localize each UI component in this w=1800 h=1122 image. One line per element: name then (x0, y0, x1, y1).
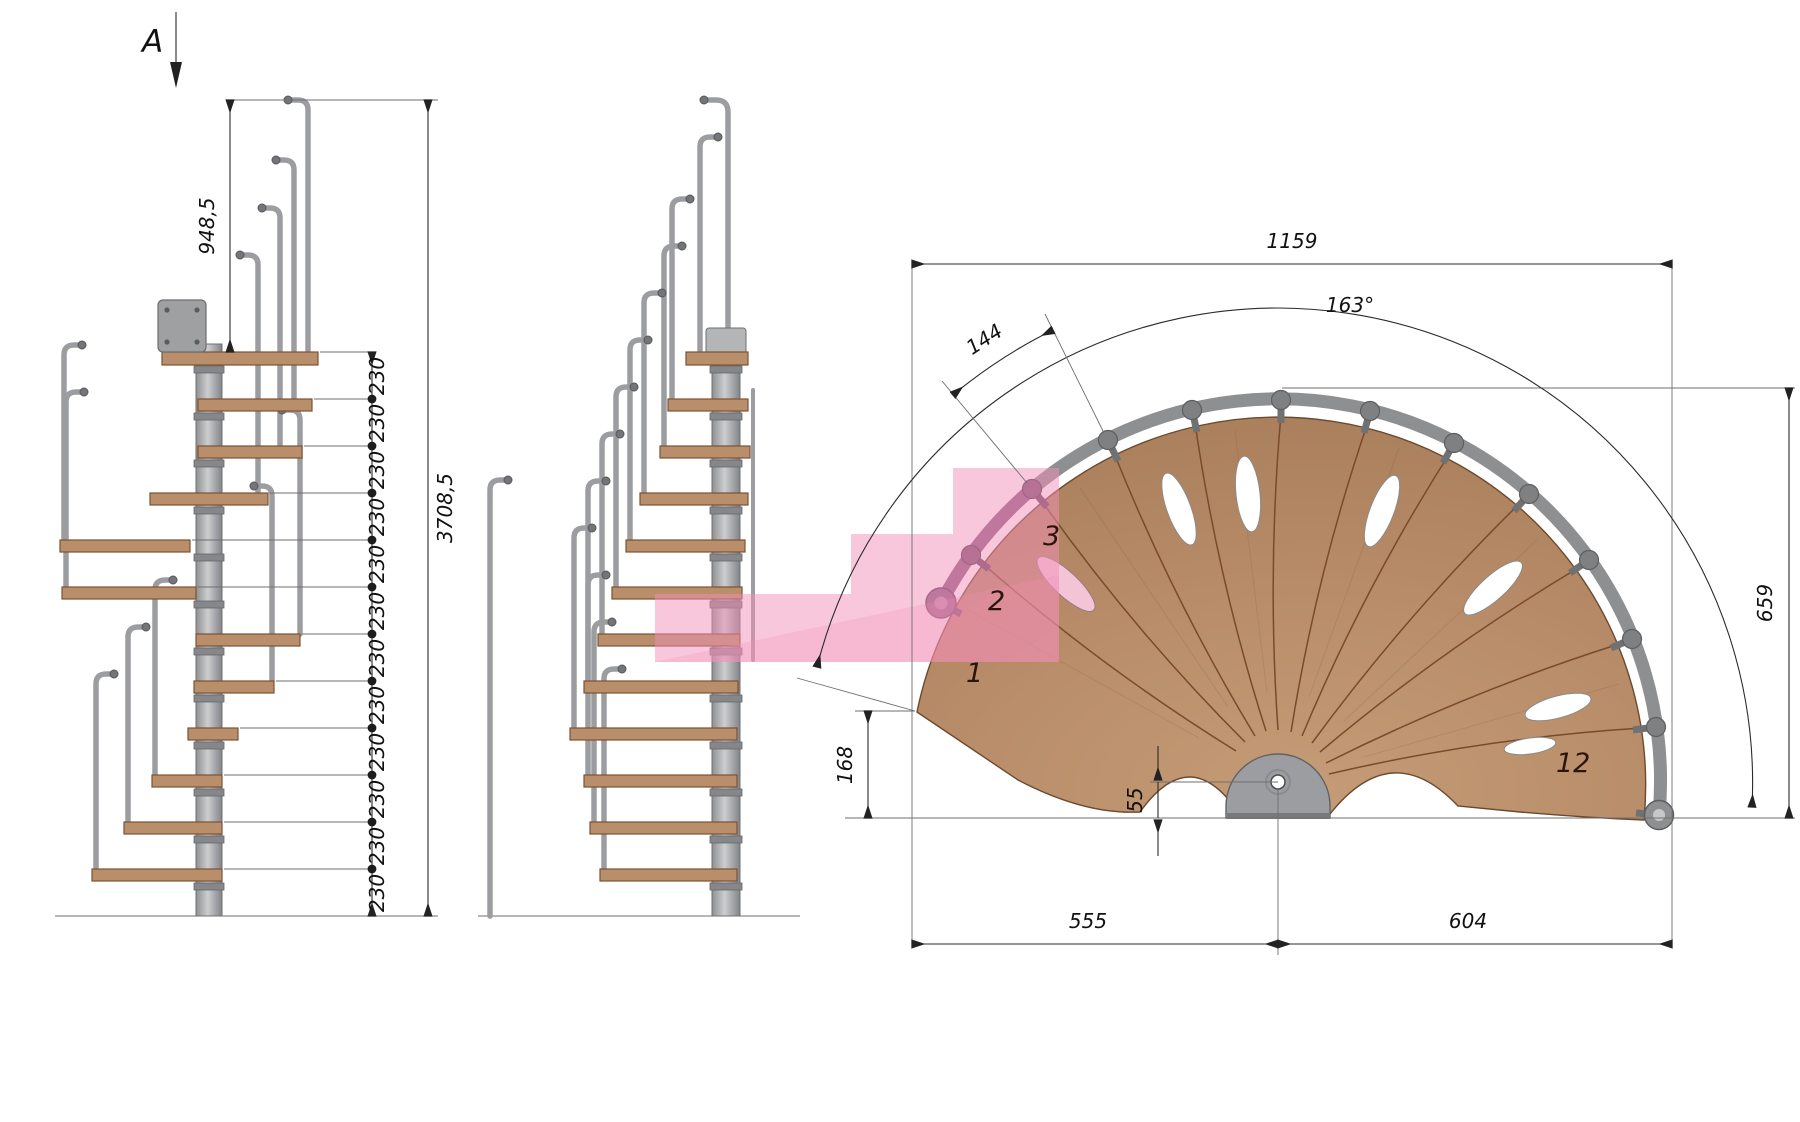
tread-number-3: 3 (1043, 521, 1060, 552)
tread-number-12: 12 (1556, 748, 1590, 779)
section-marker: A (140, 12, 182, 88)
svg-text:230: 230 (365, 498, 389, 536)
dim-angle-label: 163° (1326, 293, 1374, 317)
dim-tread-width-label: 144 (962, 319, 1007, 360)
handrail-posts (64, 96, 308, 869)
handrail-end-cap-right-inner (1653, 809, 1665, 821)
svg-text:230: 230 (365, 874, 389, 912)
svg-text:230: 230 (365, 357, 389, 395)
drawing-canvas: A (0, 0, 1800, 1122)
svg-text:230: 230 (365, 451, 389, 489)
tread-number-2: 2 (988, 586, 1005, 617)
section-marker-label: A (140, 24, 163, 60)
wall-mount-plate (158, 300, 206, 352)
section-arrow-head (170, 62, 182, 88)
svg-text:230: 230 (365, 639, 389, 677)
svg-text:230: 230 (365, 780, 389, 818)
dim-left-span-label: 555 (1069, 909, 1107, 933)
svg-text:230: 230 (365, 733, 389, 771)
dim-right-span-label: 604 (1449, 909, 1487, 933)
svg-text:230: 230 (365, 827, 389, 865)
dim-plan-width-label: 1159 (1267, 229, 1318, 253)
dim-total-label: 3708,5 (433, 473, 457, 543)
tread-number-1: 1 (966, 658, 983, 689)
pole-top-sleeve (706, 328, 746, 354)
svg-text:230: 230 (365, 686, 389, 724)
svg-text:230: 230 (365, 592, 389, 630)
dim-plan-height-label: 659 (1753, 584, 1777, 622)
front-elevation-view (478, 96, 800, 916)
svg-text:230: 230 (365, 545, 389, 583)
dim-corner-height-label: 168 (833, 746, 857, 784)
plan-view: 1 2 3 12 (655, 391, 1674, 830)
dim-948-label: 948,5 (195, 197, 219, 254)
dim-pole-offset-label: 55 (1123, 787, 1147, 812)
elevation-dimensions: 948,5 230 230 230 230 230 230 230 230 (192, 100, 457, 916)
svg-text:230: 230 (365, 404, 389, 442)
staircase-technical-drawing: A (0, 0, 1800, 1122)
